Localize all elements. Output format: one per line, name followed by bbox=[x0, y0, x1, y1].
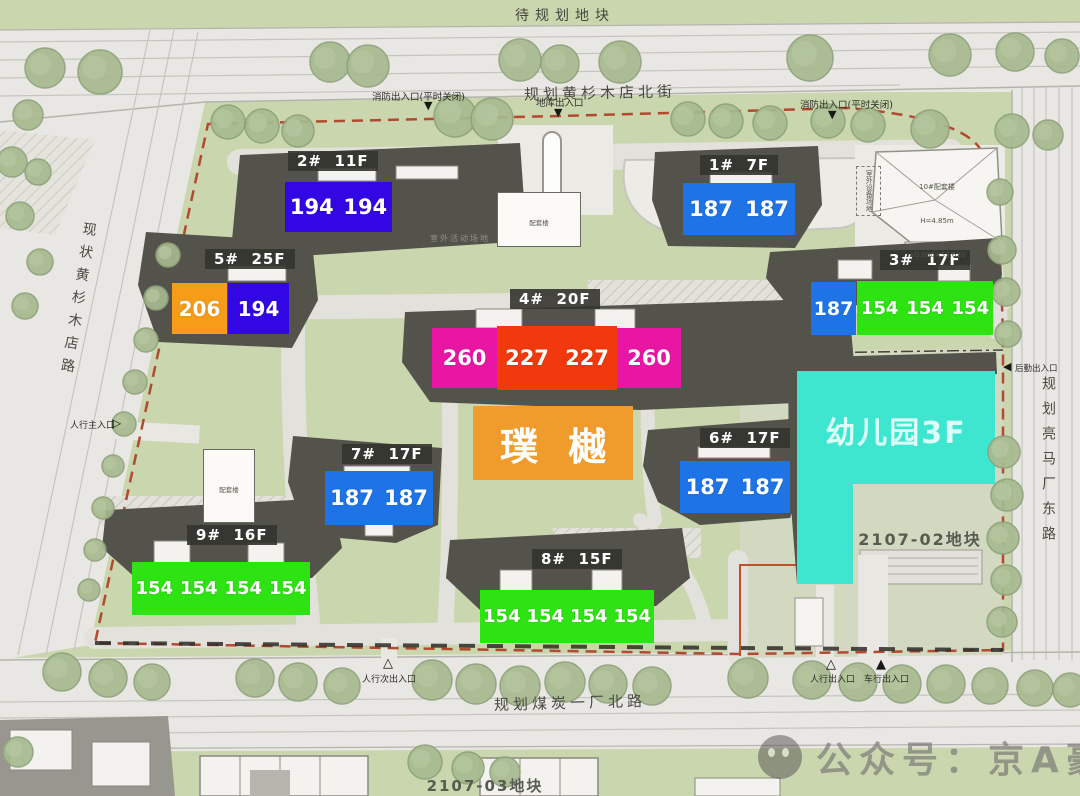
outdoor-activity-label: 室外活动场地 bbox=[430, 233, 490, 244]
unit-value: 154 bbox=[952, 298, 990, 319]
entrance-fire-ne-arrow-icon: ▼ bbox=[828, 109, 836, 120]
unit-value: 154 bbox=[269, 578, 307, 599]
unit-value: 194 bbox=[343, 195, 387, 219]
unit-value: 154 bbox=[135, 578, 173, 599]
building-4-unit-d: 260 bbox=[617, 328, 681, 388]
watermark: 公众号：京A豪宅 bbox=[758, 731, 1080, 783]
entrance-fire-nw-label: 消防出入口(平时关闭) bbox=[372, 89, 465, 103]
aux-10-height: H=4.85m bbox=[893, 216, 981, 227]
building-label-8: 8# 15F bbox=[532, 549, 622, 569]
unit-value: 154 bbox=[613, 606, 651, 627]
building-label-9: 9# 16F bbox=[187, 525, 277, 545]
aux-center-name: 配套楼 bbox=[498, 219, 580, 229]
wechat-logo-icon bbox=[758, 735, 802, 779]
building-8-units: 154154154154 bbox=[480, 590, 654, 643]
unit-value: 194 bbox=[238, 297, 280, 321]
unit-value: 154 bbox=[224, 578, 262, 599]
unit-value: 260 bbox=[627, 346, 671, 370]
unit-value: 187 bbox=[741, 475, 785, 499]
entrance-ped-se-label: 人行出入口 bbox=[810, 672, 855, 685]
building-9-units: 154154154154 bbox=[132, 562, 310, 615]
base-map bbox=[0, 0, 1080, 796]
site-plan-map: 待规划地块 规划黄杉木店北街 规划煤炭一厂北路 现状黄杉木店路 规划亮马厂东路 … bbox=[0, 0, 1080, 796]
entrance-veh-se-label: 车行出入口 bbox=[864, 672, 909, 685]
unit-value: 206 bbox=[179, 297, 221, 321]
building-3-units-b: 154154154 bbox=[857, 281, 993, 335]
unit-value: 187 bbox=[330, 486, 374, 510]
aux-10-name: 10#配套楼 bbox=[893, 182, 981, 193]
unit-value: 154 bbox=[861, 298, 899, 319]
unit-value: 227 bbox=[505, 346, 549, 370]
project-name-box: 璞樾 bbox=[473, 406, 633, 480]
watermark-text: 公众号：京A豪宅 bbox=[816, 731, 1080, 783]
entrance-fire-nw-arrow-icon: ▼ bbox=[424, 100, 432, 111]
building-3-unit-a: 187 bbox=[811, 282, 856, 335]
unit-value: 154 bbox=[180, 578, 218, 599]
road-label-east: 规划亮马厂东路 bbox=[1038, 376, 1058, 626]
parcel-label-north: 待规划地块 bbox=[415, 5, 715, 25]
unit-value: 187 bbox=[686, 475, 730, 499]
building-label-4: 4# 20F bbox=[510, 289, 600, 309]
unit-value: 154 bbox=[483, 606, 521, 627]
entrance-garage-n-arrow-icon: ▼ bbox=[554, 107, 562, 118]
unit-value: 187 bbox=[689, 197, 733, 221]
entrance-ped-sec-arrow-icon: △ bbox=[383, 657, 393, 670]
unit-value: 154 bbox=[570, 606, 608, 627]
unit-value: 187 bbox=[384, 486, 428, 510]
building-4-unit-a: 260 bbox=[432, 328, 497, 388]
aux-building-note-center: 配套楼 ±0.000=33.630 bbox=[497, 192, 581, 247]
unit-value: 154 bbox=[526, 606, 564, 627]
building-label-6: 6# 17F bbox=[700, 428, 790, 448]
unit-value: 227 bbox=[565, 346, 609, 370]
outdoor-equipment-box: 室外设备场地 bbox=[856, 166, 881, 216]
entrance-logistics-label: 后勤出入口 bbox=[1015, 362, 1058, 374]
building-4-units-mid: 227227 bbox=[497, 326, 617, 390]
entrance-ped-sec-label: 人行次出入口 bbox=[362, 672, 416, 685]
parcel-label-02: 2107-02地块 bbox=[835, 526, 1005, 550]
unit-value: 187 bbox=[745, 197, 789, 221]
building-label-5: 5# 25F bbox=[205, 249, 295, 269]
aux-west-name: 配套楼 bbox=[204, 486, 254, 496]
building-6-units: 187187 bbox=[680, 461, 790, 513]
entrance-veh-se-arrow-icon: ▲ bbox=[876, 658, 886, 671]
building-label-2: 2# 11F bbox=[288, 151, 378, 171]
entrance-ped-se-arrow-icon: △ bbox=[826, 658, 836, 671]
building-7-units: 187187 bbox=[325, 471, 433, 525]
building-label-7: 7# 17F bbox=[342, 444, 432, 464]
building-label-1: 1# 7F bbox=[700, 155, 778, 175]
entrance-ped-main-arrow-icon: ▷ bbox=[112, 417, 121, 429]
aux-building-note-west: 配套楼 bbox=[203, 449, 255, 523]
entrance-fire-ne-label: 消防出入口(平时关闭) bbox=[800, 97, 893, 111]
building-1-units: 187187 bbox=[683, 183, 795, 235]
unit-value: 194 bbox=[290, 195, 334, 219]
parcel-label-03: 2107-03地块 bbox=[395, 775, 575, 796]
entrance-ped-main-label: 人行主入口 bbox=[70, 418, 115, 431]
unit-value: 260 bbox=[443, 346, 487, 370]
aux-10-elev: ±0.000=53.620 bbox=[893, 250, 981, 261]
unit-value: 187 bbox=[814, 298, 854, 320]
entrance-logistics-arrow-icon: ◀ bbox=[1003, 361, 1011, 372]
building-5-unit-b: 194 bbox=[228, 283, 289, 334]
aux-building-note-10: 10#配套楼 H=4.85m ±0.000=53.620 bbox=[893, 160, 981, 272]
building-5-unit-a: 206 bbox=[172, 283, 227, 334]
kindergarten-label: 幼儿园3F bbox=[799, 408, 993, 452]
building-2-units: 194194 bbox=[285, 182, 392, 232]
unit-value: 154 bbox=[906, 298, 944, 319]
